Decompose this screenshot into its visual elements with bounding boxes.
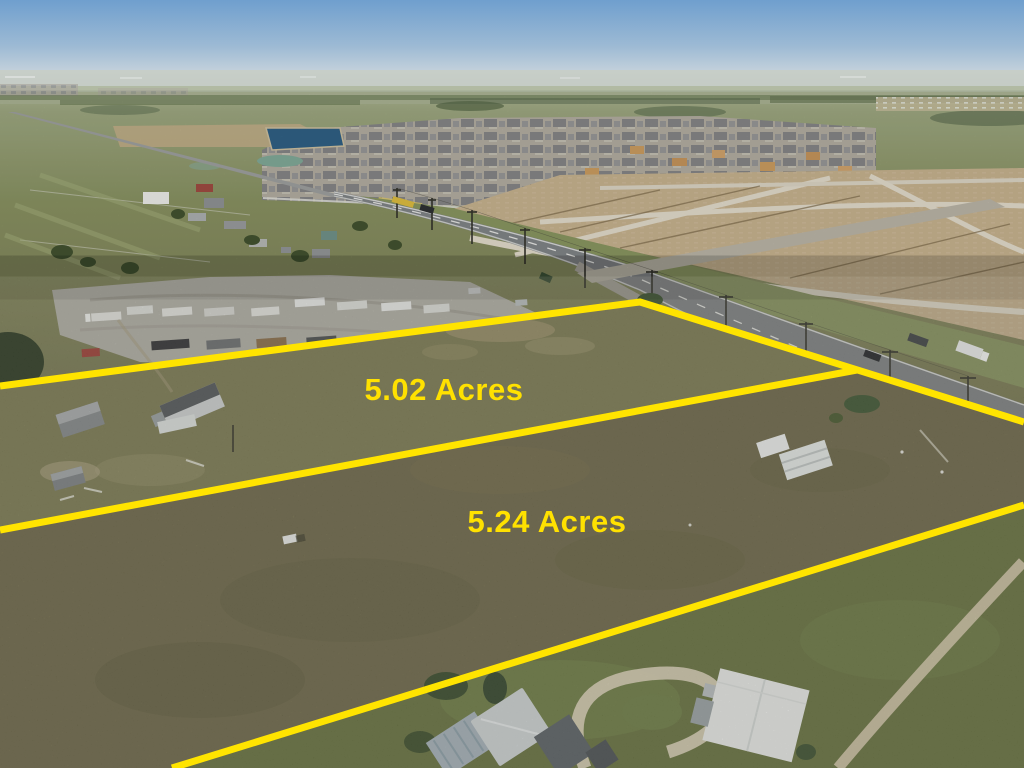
parcel-502-label: 5.02 Acres (365, 372, 524, 407)
aerial-parcel-photo: 5.02 Acres 5.24 Acres (0, 0, 1024, 768)
parcel-524-label: 5.24 Acres (468, 504, 627, 539)
